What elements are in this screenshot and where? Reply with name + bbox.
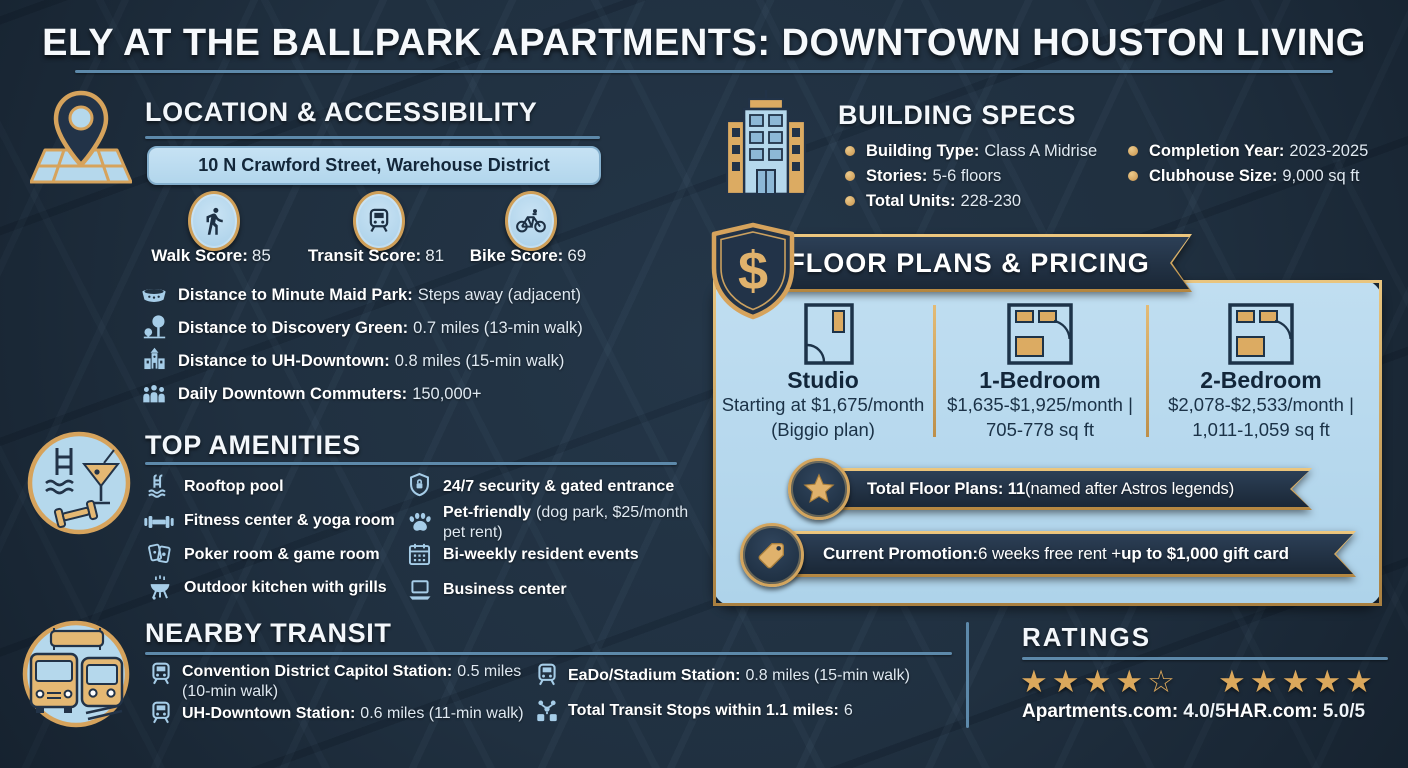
walk-icon [199, 206, 229, 236]
transit-score-badge [353, 191, 405, 251]
map-pin-icon [30, 88, 132, 186]
calendar-icon [406, 541, 433, 568]
har-rating: HAR.com:5.0/5 [1226, 701, 1365, 723]
amenities-heading: TOP AMENITIES [145, 430, 361, 461]
amenity-item: Pet-friendly(dog park, $25/month pet ren… [443, 503, 695, 542]
location-underline [145, 136, 600, 139]
studio-plan-icon [804, 303, 854, 365]
price-tag-icon [756, 539, 788, 571]
bullet-icon [1128, 146, 1138, 156]
train-icon [365, 207, 393, 235]
promotion-ribbon: Current Promotion: 6 weeks free rent + u… [772, 531, 1356, 577]
bike-score: Bike Score:69 [443, 246, 613, 266]
har-stars: ★★★★★ [1218, 664, 1377, 700]
address-pill: 10 N Crawford Street, Warehouse District [147, 146, 601, 185]
spec-item: Building Type:Class A Midrise [866, 141, 1097, 161]
dollar-shield-icon: $ [706, 221, 800, 321]
plan-studio: Studio Starting at $1,675/month (Biggio … [716, 367, 930, 442]
transit-item: UH-Downtown Station:0.6 miles (11-min wa… [182, 704, 524, 724]
tag-badge [740, 523, 804, 587]
amenity-item: Outdoor kitchen with grills [184, 578, 412, 598]
transit-network-icon [532, 696, 562, 726]
floor-plans-ribbon: FLOOR PLANS & PRICING [762, 234, 1192, 292]
transit-item: Total Transit Stops within 1.1 miles:6 [568, 701, 853, 721]
transit-item: Convention District Capitol Station:0.5 … [182, 662, 527, 701]
plan-one-bedroom: 1-Bedroom $1,635-$1,925/month | 705-778 … [936, 367, 1144, 442]
ratings-underline [1022, 657, 1388, 660]
floor-plans-heading: FLOOR PLANS & PRICING [765, 237, 1189, 289]
grill-icon [146, 573, 174, 601]
bullet-icon [1128, 171, 1138, 181]
paw-icon [406, 508, 434, 536]
bike-icon [515, 205, 547, 237]
title-underline [75, 70, 1333, 73]
station-icon [534, 662, 560, 688]
apartments-stars: ★★★★☆ [1020, 664, 1179, 700]
star-icon [802, 472, 836, 506]
walk-score: Walk Score:85 [126, 246, 296, 266]
walk-score-badge [188, 191, 240, 251]
transit-heading: NEARBY TRANSIT [145, 618, 391, 649]
page-title: ELY AT THE BALLPARK APARTMENTS: DOWNTOWN… [0, 22, 1408, 65]
bullet-icon [845, 196, 855, 206]
promotion-text: Current Promotion: 6 weeks free rent + u… [775, 534, 1353, 574]
transit-item: EaDo/Stadium Station:0.8 miles (15-min w… [568, 666, 910, 686]
station-icon [148, 661, 174, 687]
spec-item: Stories:5-6 floors [866, 166, 1001, 186]
transit-underline [145, 652, 952, 655]
amenity-item: Business center [443, 580, 695, 600]
station-icon [148, 700, 174, 726]
security-icon [406, 472, 433, 499]
apartments-rating: Apartments.com:4.0/5 [1022, 701, 1226, 723]
spec-item: Total Units:228-230 [866, 191, 1021, 211]
dollar-symbol: $ [738, 241, 768, 301]
spec-item: Clubhouse Size:9,000 sq ft [1149, 166, 1359, 186]
cards-icon [146, 540, 174, 568]
distance-item: Distance to Minute Maid Park:Steps away … [178, 285, 581, 305]
plan-divider [1146, 305, 1149, 437]
amenity-item: Poker room & game room [184, 545, 412, 565]
spec-item: Completion Year:2023-2025 [1149, 141, 1368, 161]
building-specs-heading: BUILDING SPECS [838, 100, 1076, 131]
building-icon [720, 90, 812, 197]
distance-item: Daily Downtown Commuters:150,000+ [178, 384, 481, 404]
transit-score: Transit Score:81 [291, 246, 461, 266]
ratings-heading: RATINGS [1022, 622, 1151, 653]
transit-circle-icon [20, 616, 132, 732]
plan-two-bedroom: 2-Bedroom $2,078-$2,533/month | 1,011-1,… [1150, 367, 1372, 442]
university-icon [141, 346, 168, 373]
amenities-underline [145, 462, 677, 465]
stadium-icon [140, 281, 168, 309]
park-icon [141, 313, 168, 340]
location-heading: LOCATION & ACCESSIBILITY [145, 97, 537, 128]
bullet-icon [845, 146, 855, 156]
infographic: ELY AT THE BALLPARK APARTMENTS: DOWNTOWN… [0, 0, 1408, 768]
star-badge [788, 458, 850, 520]
bullet-icon [845, 171, 855, 181]
amenity-item: 24/7 security & gated entrance [443, 477, 695, 497]
amenity-item: Fitness center & yoga room [184, 511, 412, 531]
distance-item: Distance to Discovery Green:0.7 miles (1… [178, 318, 583, 338]
distance-item: Distance to UH-Downtown:0.8 miles (15-mi… [178, 351, 564, 371]
total-plans-text: Total Floor Plans: 11 (named after Astro… [821, 471, 1309, 507]
pool-icon [146, 472, 173, 499]
dumbbell-icon [143, 506, 175, 538]
commuters-icon [140, 379, 168, 407]
two-bedroom-plan-icon [1228, 303, 1294, 365]
amenity-item: Rooftop pool [184, 477, 412, 497]
bike-score-badge [505, 191, 557, 251]
one-bedroom-plan-icon [1007, 303, 1073, 365]
amenities-circle-icon [26, 430, 132, 536]
ratings-divider [966, 622, 969, 728]
laptop-icon [406, 576, 434, 604]
total-plans-ribbon: Total Floor Plans: 11 (named after Astro… [818, 468, 1312, 510]
amenity-item: Bi-weekly resident events [443, 545, 695, 565]
